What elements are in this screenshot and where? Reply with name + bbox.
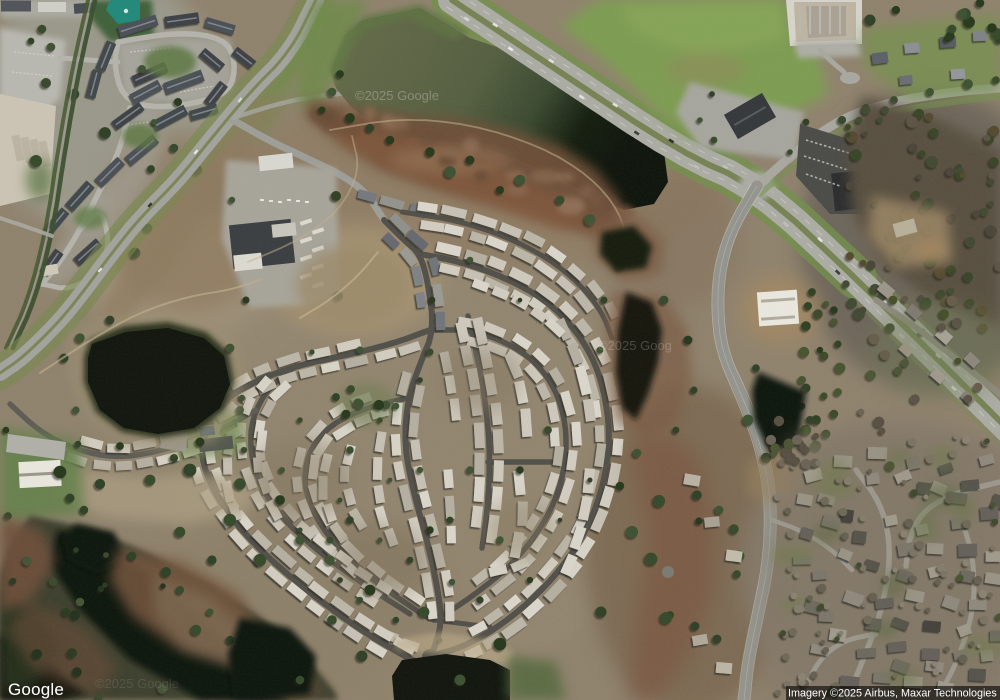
svg-text:Google: Google	[8, 680, 64, 699]
svg-text:Imagery ©2025 Airbus, Maxar Te: Imagery ©2025 Airbus, Maxar Technologies	[788, 688, 997, 700]
